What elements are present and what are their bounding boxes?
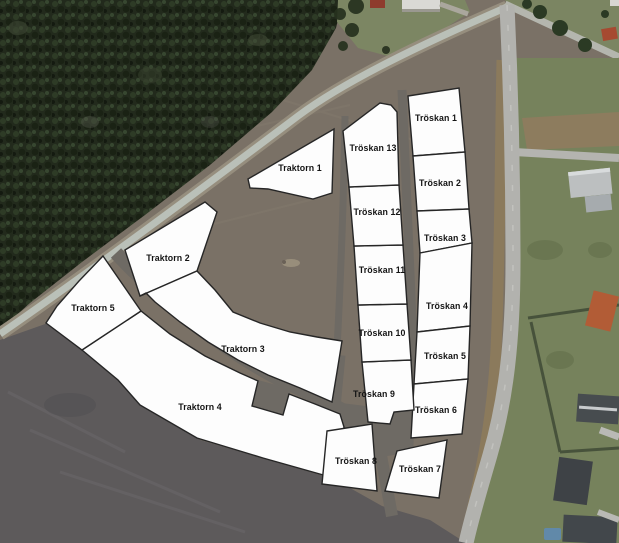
plot-label-troskan-2: Tröskan 2 — [419, 178, 461, 188]
plot-troskan-8[interactable]: Tröskan 8 — [322, 424, 377, 491]
plot-troskan-4[interactable]: Tröskan 4 — [417, 243, 472, 332]
plot-label-troskan-9: Tröskan 9 — [353, 389, 395, 399]
plot-boundary-troskan-11[interactable] — [354, 245, 407, 305]
plot-label-traktorn-3: Traktorn 3 — [221, 344, 265, 354]
plot-label-traktorn-5: Traktorn 5 — [71, 303, 115, 313]
plot-label-traktorn-1: Traktorn 1 — [278, 163, 322, 173]
white-roof-house-shadow — [402, 9, 440, 12]
plot-label-troskan-1: Tröskan 1 — [415, 113, 457, 123]
plot-label-troskan-3: Tröskan 3 — [424, 233, 466, 243]
plot-label-troskan-5: Tröskan 5 — [424, 351, 466, 361]
topright-red-roof — [601, 27, 618, 41]
plot-map-canvas: Traktorn 1Traktorn 2Traktorn 3Traktorn 4… — [0, 0, 619, 543]
plot-label-troskan-8: Tröskan 8 — [335, 456, 377, 466]
plot-troskan-10[interactable]: Tröskan 10 — [358, 304, 411, 362]
aerial-plot-map: Traktorn 1Traktorn 2Traktorn 3Traktorn 4… — [0, 0, 619, 543]
plot-label-traktorn-2: Traktorn 2 — [146, 253, 190, 263]
plot-label-troskan-13: Tröskan 13 — [350, 143, 397, 153]
plot-troskan-2[interactable]: Tröskan 2 — [413, 152, 469, 211]
plot-troskan-1[interactable]: Tröskan 1 — [408, 88, 465, 156]
plot-label-troskan-4: Tröskan 4 — [426, 301, 468, 311]
field-smudge-dot — [282, 260, 286, 264]
plot-label-troskan-10: Tröskan 10 — [359, 328, 406, 338]
plot-boundary-troskan-4[interactable] — [417, 243, 472, 332]
plot-troskan-12[interactable]: Tröskan 12 — [349, 185, 403, 246]
plot-troskan-6[interactable]: Tröskan 6 — [411, 379, 468, 438]
plot-label-troskan-11: Tröskan 11 — [359, 265, 405, 275]
red-roof-shed — [370, 0, 385, 8]
plot-label-traktorn-4: Traktorn 4 — [178, 402, 222, 412]
topright-white-roof — [610, 0, 619, 6]
hedge-strip — [522, 112, 619, 150]
plot-label-troskan-12: Tröskan 12 — [354, 207, 401, 217]
plot-troskan-5[interactable]: Tröskan 5 — [414, 326, 470, 384]
plot-troskan-11[interactable]: Tröskan 11 — [354, 245, 407, 305]
plot-label-troskan-7: Tröskan 7 — [399, 464, 441, 474]
plot-label-troskan-6: Tröskan 6 — [415, 405, 457, 415]
white-roof-house — [402, 0, 440, 10]
dark-field-patch — [44, 393, 96, 417]
